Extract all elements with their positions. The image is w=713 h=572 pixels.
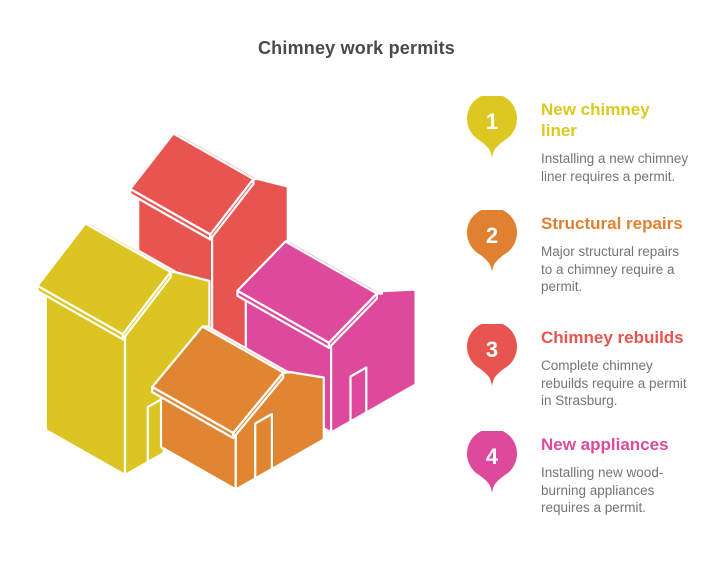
item-title: New appliances bbox=[541, 434, 702, 455]
item-description: Installing a new chimney liner requires … bbox=[541, 150, 702, 185]
item-title: New chimney liner bbox=[541, 99, 702, 141]
item-number: 4 bbox=[486, 444, 499, 469]
item-number: 1 bbox=[486, 109, 498, 134]
item-number: 3 bbox=[486, 337, 498, 362]
pin-1-icon: 1 bbox=[466, 96, 518, 164]
item-text: New appliances Installing new wood- burn… bbox=[541, 431, 702, 517]
item-title: Structural repairs bbox=[541, 213, 702, 234]
infographic-canvas: Chimney work permits 1 New chimney liner… bbox=[0, 0, 713, 572]
pin-3-icon: 3 bbox=[466, 324, 518, 392]
pin-2-icon: 2 bbox=[466, 210, 518, 278]
item-number: 2 bbox=[486, 223, 498, 248]
item-title: Chimney rebuilds bbox=[541, 327, 702, 348]
item-text: Structural repairs Major structural repa… bbox=[541, 210, 702, 296]
list-item: 4 New appliances Installing new wood- bu… bbox=[466, 431, 702, 517]
item-description: Complete chimney rebuilds require a perm… bbox=[541, 357, 702, 410]
item-description: Installing new wood- burning appliances … bbox=[541, 464, 702, 517]
item-text: New chimney liner Installing a new chimn… bbox=[541, 96, 702, 185]
pin-4-icon: 4 bbox=[466, 431, 518, 499]
list-item: 3 Chimney rebuilds Complete chimney rebu… bbox=[466, 324, 702, 410]
item-description: Major structural repairs to a chimney re… bbox=[541, 243, 702, 296]
list-item: 1 New chimney liner Installing a new chi… bbox=[466, 96, 702, 185]
list-item: 2 Structural repairs Major structural re… bbox=[466, 210, 702, 296]
item-text: Chimney rebuilds Complete chimney rebuil… bbox=[541, 324, 702, 410]
